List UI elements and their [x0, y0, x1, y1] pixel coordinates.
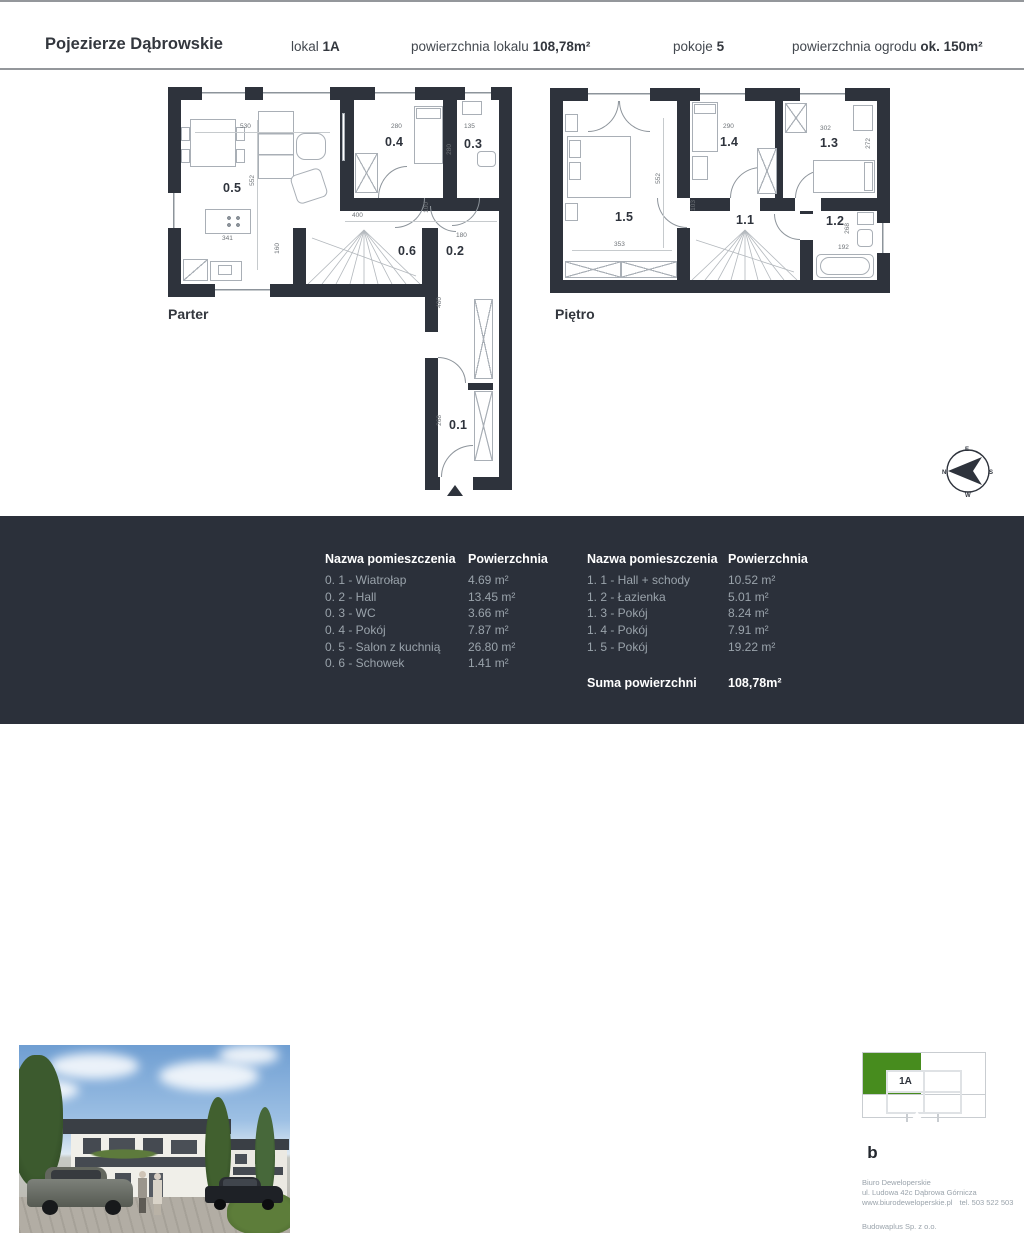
table-ground-floor: Nazwa pomieszczenia Powierzchnia 0. 1 - …: [325, 552, 587, 673]
room-label-15: 1.5: [615, 210, 633, 224]
sales-contact: www.biurodeweloperskie.pl tel. 503 522 5…: [862, 1198, 1013, 1208]
wardrobe-icon: [757, 148, 777, 194]
nightstand-icon: [565, 114, 578, 132]
contact-block: Biuro sprzedaży: Biuro Deweloperskie ul.…: [862, 1168, 1013, 1232]
dim-label: 180: [456, 232, 467, 239]
house-window: [171, 1140, 197, 1154]
unit-selector: 1A 2A 1B 2B: [862, 1052, 986, 1118]
developer-label: Deweloper realizujący inwestycję:: [862, 1212, 1013, 1222]
garden-value: ok. 150m²: [920, 39, 982, 54]
table-row: 1. 5 - Pokój19.22 m²: [587, 640, 849, 657]
dim-line: [257, 120, 258, 270]
room-label-04: 0.4: [385, 135, 403, 149]
chair-icon: [236, 149, 245, 163]
person-body: [138, 1178, 147, 1198]
room-label-01: 0.1: [449, 418, 467, 432]
wardrobe-icon: [355, 153, 378, 193]
door-gap: [425, 332, 438, 358]
unit-cell-2b[interactable]: 2B: [924, 1092, 961, 1113]
bathtub-inner: [820, 257, 870, 275]
table-row: 0. 6 - Schowek1.41 m²: [325, 656, 587, 673]
sales-tel: tel. 503 522 503: [960, 1198, 1014, 1207]
room-name: 0. 1 - Wiatrołap: [325, 573, 468, 590]
table-header: Nazwa pomieszczenia Powierzchnia: [587, 552, 849, 566]
room-name: 1. 4 - Pokój: [587, 623, 728, 640]
dim-label: 268: [436, 415, 443, 426]
table-row: 1. 2 - Łazienka5.01 m²: [587, 590, 849, 607]
logo-b-mark: b: [862, 1142, 883, 1163]
compass-n: N: [942, 470, 946, 476]
dim-label: 280: [446, 144, 453, 155]
pillow-icon: [569, 162, 581, 180]
person-head: [139, 1171, 146, 1178]
person-head: [154, 1173, 161, 1180]
car-wheel: [262, 1199, 274, 1210]
room-label-13: 1.3: [820, 136, 838, 150]
room-area: 26.80 m²: [468, 640, 587, 657]
dim-label: 552: [655, 173, 662, 184]
person-legs: [139, 1198, 146, 1213]
wardrobe-icon: [785, 103, 807, 133]
unit-cell-2a[interactable]: 2A: [924, 1071, 961, 1092]
wardrobe-icon: [474, 299, 493, 379]
cloud: [49, 1053, 139, 1079]
wall: [468, 383, 493, 390]
dim-label: 530: [240, 123, 251, 130]
table-row: 0. 4 - Pokój7.87 m²: [325, 623, 587, 640]
table-row: 0. 1 - Wiatrołap4.69 m²: [325, 573, 587, 590]
floorplan-pietro: 552 353 290 302 272 103 268 192 1.5 1.4 …: [550, 88, 890, 293]
table-row: 0. 2 - Hall13.45 m²: [325, 590, 587, 607]
logo-wordmark: biuro deweloperskie: [927, 1142, 992, 1162]
dim-label: 268: [844, 223, 851, 234]
dim-label: 552: [249, 175, 256, 186]
logo-dew-mark: dew: [885, 1142, 919, 1163]
compass-s: S: [989, 470, 993, 476]
window: [588, 88, 650, 101]
washbasin-icon: [857, 212, 874, 225]
building-photo: [19, 1045, 290, 1233]
porch-line: [937, 1114, 939, 1122]
window: [800, 88, 845, 101]
cooktop-icon: [225, 214, 243, 229]
header-lokal: lokal 1A: [291, 39, 340, 54]
compass-icon: N E S W: [941, 444, 995, 498]
car-wheel: [105, 1200, 121, 1215]
pillow-icon: [416, 108, 441, 119]
table-row: 1. 4 - Pokój7.91 m²: [587, 623, 849, 640]
wardrobe-icon: [621, 261, 677, 278]
coffee-table-icon: [296, 133, 326, 160]
garden-label: powierzchnia ogrodu: [792, 39, 917, 54]
entrance-arrow-icon: [447, 485, 463, 496]
entrance-arrow-icon: [912, 1111, 922, 1119]
dim-label: 353: [614, 241, 625, 248]
room-area: 5.01 m²: [728, 590, 849, 607]
footer-panel: Nazwa pomieszczenia Powierzchnia 0. 1 - …: [0, 516, 1024, 724]
room-label-06: 0.6: [398, 244, 416, 258]
dim-label: 280: [391, 123, 402, 130]
room-area: 3.66 m²: [468, 606, 587, 623]
room-area: 13.45 m²: [468, 590, 587, 607]
dim-label: 135: [464, 123, 475, 130]
window: [465, 87, 491, 100]
area-value: 108,78m²: [533, 39, 591, 54]
dim-label: 160: [274, 243, 281, 254]
room-label-02: 0.2: [446, 244, 464, 258]
dim-label: 302: [820, 125, 831, 132]
sum-value: 108,78m²: [728, 676, 849, 690]
wardrobe-icon: [474, 391, 493, 461]
logo-line2: deweloperskie: [927, 1153, 992, 1163]
room-label-11: 1.1: [736, 213, 754, 227]
dim-label: 103: [690, 200, 697, 211]
developer-logo: b dew biuro deweloperskie: [862, 1142, 992, 1163]
sales-address: ul. Ludowa 42c Dąbrowa Górnicza: [862, 1188, 1013, 1198]
balcony-plants: [89, 1149, 159, 1159]
parter-title: Parter: [168, 306, 208, 322]
rooms-value: 5: [717, 39, 725, 54]
window: [202, 87, 245, 100]
car-wheel: [214, 1199, 226, 1210]
porch-line: [906, 1114, 908, 1122]
room-name: 0. 6 - Schowek: [325, 656, 468, 673]
window: [215, 284, 270, 297]
corner-cabinet-icon: [183, 259, 208, 281]
rooms-label: pokoje: [673, 39, 713, 54]
col-area: Powierzchnia: [468, 552, 587, 566]
pietro-title: Piętro: [555, 306, 595, 322]
compass-w: W: [965, 493, 971, 498]
dim-line: [663, 118, 664, 248]
dim-line: [572, 250, 672, 251]
room-label-03: 0.3: [464, 137, 482, 151]
chair-icon: [181, 127, 190, 141]
table-row: 0. 3 - WC3.66 m²: [325, 606, 587, 623]
header-bar: Pojezierze Dąbrowskie lokal 1A powierzch…: [0, 0, 1024, 70]
area-label: powierzchnia lokalu: [411, 39, 529, 54]
dim-label: 480: [436, 297, 443, 308]
unit-grid: 1A 2A 1B 2B: [886, 1070, 962, 1114]
room-area: 10.52 m²: [728, 573, 849, 590]
toilet-icon: [857, 229, 873, 247]
stairs-icon: [690, 228, 800, 280]
pillow-icon: [864, 162, 873, 191]
floorplan-parter: 530 552 341 280 135 280 400 100 180 160 …: [168, 87, 512, 490]
pillow-icon: [694, 104, 716, 114]
header-garden: powierzchnia ogrodu ok. 150m²: [792, 39, 983, 54]
nightstand-icon: [565, 203, 578, 221]
window: [700, 88, 745, 101]
unit-cell-1b[interactable]: 1B: [887, 1092, 924, 1113]
window: [877, 223, 890, 253]
unit-cell-1a[interactable]: 1A: [887, 1071, 924, 1092]
dim-label: 341: [222, 235, 233, 242]
sales-label: Biuro sprzedaży:: [862, 1168, 1013, 1178]
toilet-icon: [477, 151, 496, 167]
door-gap: [795, 198, 821, 211]
window: [375, 87, 415, 100]
window: [263, 87, 330, 100]
room-name: 1. 3 - Pokój: [587, 606, 728, 623]
room-area: 4.69 m²: [468, 573, 587, 590]
sum-row: Suma powierzchni 108,78m²: [587, 676, 849, 690]
room-area: 1.41 m²: [468, 656, 587, 673]
lokal-value: 1A: [323, 39, 340, 54]
wall: [293, 228, 306, 297]
person: [137, 1171, 148, 1213]
compass-e: E: [965, 447, 969, 453]
chair-icon: [181, 149, 190, 163]
logo-line1: biuro: [927, 1143, 992, 1153]
window: [168, 193, 181, 228]
table-row: 1. 1 - Hall + schody10.52 m²: [587, 573, 849, 590]
room-name: 0. 2 - Hall: [325, 590, 468, 607]
room-area: 8.24 m²: [728, 606, 849, 623]
room-area: 7.91 m²: [728, 623, 849, 640]
dining-table-icon: [190, 119, 236, 167]
dim-label: 290: [723, 123, 734, 130]
project-title: Pojezierze Dąbrowskie: [45, 35, 223, 54]
table-row: 1. 3 - Pokój8.24 m²: [587, 606, 849, 623]
header-rooms: pokoje 5: [673, 39, 724, 54]
cloud: [159, 1061, 259, 1091]
room-name: 0. 4 - Pokój: [325, 623, 468, 640]
door-gap: [800, 214, 813, 240]
room-label-12: 1.2: [826, 214, 844, 228]
dresser-icon: [853, 105, 873, 131]
person-legs: [154, 1204, 161, 1215]
car-wheel: [42, 1200, 58, 1215]
dim-line: [345, 221, 497, 222]
header-area: powierzchnia lokalu 108,78m²: [411, 39, 590, 54]
room-name: 1. 5 - Pokój: [587, 640, 728, 657]
room-area: 7.87 m²: [468, 623, 587, 640]
table-row: 0. 5 - Salon z kuchnią26.80 m²: [325, 640, 587, 657]
washbasin-icon: [462, 101, 482, 115]
door-gap: [730, 198, 760, 211]
cloud: [219, 1045, 279, 1065]
col-area: Powierzchnia: [728, 552, 849, 566]
room-label-14: 1.4: [720, 135, 738, 149]
col-name: Nazwa pomieszczenia: [325, 552, 468, 566]
dim-label: 400: [352, 212, 363, 219]
sink-icon: [218, 265, 232, 275]
dim-label: 100: [423, 202, 430, 213]
dim-line: [195, 132, 330, 133]
table-upper-floor: Nazwa pomieszczenia Powierzchnia 1. 1 - …: [587, 552, 849, 690]
dim-label: 192: [838, 244, 849, 251]
car-sedan: [205, 1177, 283, 1211]
person: [152, 1173, 163, 1215]
room-name: 1. 2 - Łazienka: [587, 590, 728, 607]
lokal-label: lokal: [291, 39, 319, 54]
wardrobe-icon: [565, 261, 621, 278]
room-area: 19.22 m²: [728, 640, 849, 657]
developer-name: Budowaplus Sp. z o.o.: [862, 1222, 1013, 1232]
house-window: [235, 1154, 247, 1164]
pillow-icon: [569, 140, 581, 158]
table-header: Nazwa pomieszczenia Powierzchnia: [325, 552, 587, 566]
sales-www[interactable]: www.biurodeweloperskie.pl: [862, 1198, 952, 1207]
desk-icon: [692, 156, 708, 180]
wall: [422, 228, 430, 284]
room-name: 0. 3 - WC: [325, 606, 468, 623]
car-suv: [27, 1167, 133, 1215]
tv-icon: [342, 113, 345, 161]
room-label-05: 0.5: [223, 181, 241, 195]
person-body: [153, 1180, 162, 1204]
room-name: 0. 5 - Salon z kuchnią: [325, 640, 468, 657]
dim-label: 272: [865, 138, 872, 149]
sum-label: Suma powierzchni: [587, 676, 728, 690]
sofa-icon: [258, 111, 294, 179]
room-name: 1. 1 - Hall + schody: [587, 573, 728, 590]
col-name: Nazwa pomieszczenia: [587, 552, 728, 566]
sales-name: Biuro Deweloperskie: [862, 1178, 1013, 1188]
